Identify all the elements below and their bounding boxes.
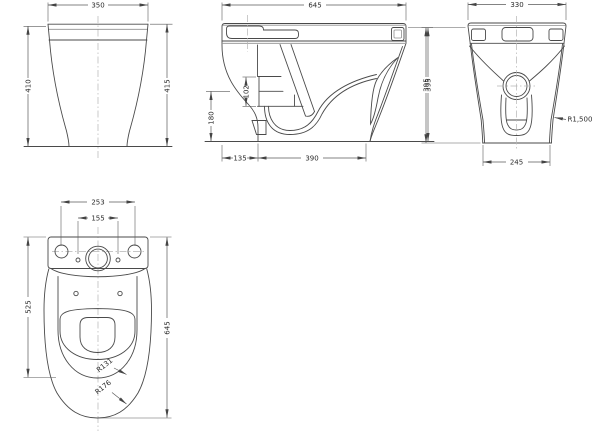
dim-plan-overall-length: 645 (163, 321, 171, 334)
dim-side-front-offset: 135 (233, 154, 246, 162)
front-right-profile (127, 24, 148, 146)
dim-side-base-depth: 390 (305, 154, 318, 162)
dim-back-base-width: 245 (510, 158, 523, 166)
back-shoulder-curve-right (530, 46, 565, 81)
front-left-profile (48, 24, 69, 146)
side-hinge-hole-inner (394, 30, 402, 38)
plan-small-hole-right (116, 258, 120, 262)
side-back-void (371, 58, 399, 125)
dim-plan-hole-spacing-inner: 155 (91, 214, 104, 222)
front-view: 350 410 415 (24, 1, 173, 158)
plan-seat-outline (58, 277, 137, 379)
plan-seat-bolt-right (118, 291, 122, 295)
side-view: 645 102 180 135 390 395 (205, 1, 434, 162)
side-flush-tube-left (280, 45, 306, 117)
dim-plan-cistern-to-seat: 525 (24, 300, 32, 313)
dim-back-overall-height: 395 (422, 78, 430, 91)
dim-side-tank-height: 102 (242, 85, 250, 98)
side-rim-pocket (227, 26, 299, 39)
dim-plan-hole-spacing-outer: 253 (91, 198, 104, 206)
side-hinge-hole-outer (392, 28, 405, 41)
back-radius-leader (555, 118, 567, 120)
dim-side-overall-depth: 645 (308, 1, 321, 9)
dim-side-water-height: 180 (207, 111, 215, 124)
plan-view: 253 155 525 645 R131 R176 (24, 198, 172, 431)
plan-small-hole-left (76, 258, 80, 262)
dim-plan-bowl-radius: R176 (94, 378, 114, 396)
back-fixing-hole-center (502, 28, 533, 42)
back-inner-wall-right (550, 44, 563, 143)
plan-seat-bolt-left (74, 291, 78, 295)
dim-front-height-left: 410 (24, 79, 32, 92)
back-inner-wall-left (472, 44, 485, 143)
back-view: 330 395 245 R1,500 (422, 1, 593, 167)
dim-front-height-right: 415 (163, 79, 171, 92)
back-fixing-hole-left (472, 29, 486, 41)
dim-back-width: 330 (510, 1, 523, 9)
plan-seat-ring-outer (60, 309, 135, 360)
back-fixing-hole-right (549, 29, 563, 41)
toilet-dimension-drawing: 350 410 415 (0, 0, 600, 441)
dim-back-side-radius: R1,500 (568, 116, 593, 124)
side-flush-tube-cap (306, 112, 315, 117)
side-front-foot (252, 121, 266, 135)
plan-seat-ring-inner (80, 318, 115, 353)
technical-drawing-canvas: 350 410 415 (0, 0, 600, 441)
dim-front-width: 350 (91, 1, 104, 9)
plan-bowl-radius-leader (112, 393, 127, 405)
